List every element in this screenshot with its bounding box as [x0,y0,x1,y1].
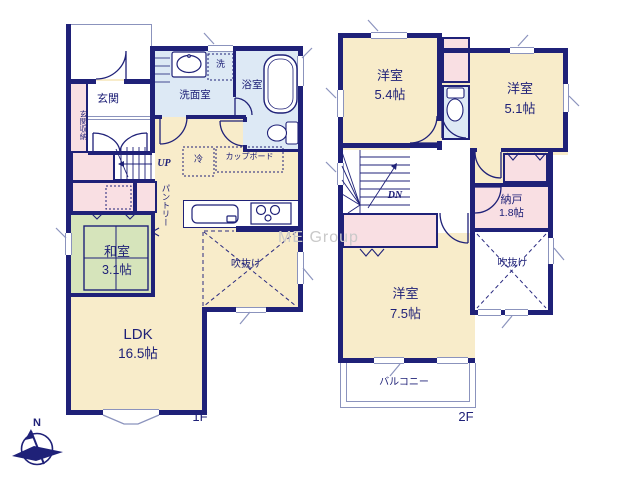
f1-bay-window-band [103,409,159,416]
f1-senmen-label: 洗面室 [160,90,230,102]
f1-senmen-room [152,46,235,117]
floorplan-canvas: 玄関 玄関収納 洗面室 洗 浴室 冷 カップボード UP パントリー 和室 3.… [0,0,640,480]
f1-window-bath [297,56,304,86]
f1-pantry-label: パントリー [158,176,170,234]
f2-wall-mid [437,33,442,121]
f1-closet-2 [71,181,135,213]
f2-window-stairs-left [337,163,344,185]
f2-window-bed3-a [374,357,404,364]
f2-bed1-size: 5.4帖 [355,88,425,102]
f2-balcony-label: バルコニー [368,377,440,388]
f1-cupboard-label: カップボード [216,153,283,162]
f1-window-void-right [297,252,304,284]
f2-void-label: 吹抜け [485,258,540,269]
f1-wall-wet-bottom-a [152,115,162,119]
f1-up-label: UP [152,158,176,169]
f1-void-label: 吹抜け [218,259,274,270]
f1-fridge-label: 冷 [183,155,214,165]
f2-wall-bed1-bottom [338,143,442,148]
f1-wall-porch-a [66,79,96,84]
f1-window-void-bottom [236,307,266,313]
f2-wall-left [338,33,343,363]
f2-wall-nando-top [475,183,553,187]
f2-window-bed2-right [563,84,569,112]
f1-ldk-label: LDK [98,327,178,344]
f1-bath-label: 浴室 [234,80,270,92]
f2-nando-size: 1.8帖 [478,208,545,220]
watermark: ME Group [278,229,388,247]
f1-genkan-storage-label: 玄関収納 [72,96,87,154]
f2-bed2-label: 洋室 [485,82,555,96]
f1-bay-window [103,415,159,424]
f2-closet-bed2 [503,153,548,183]
f2-closet-bed1 [442,37,470,83]
f2-floor-label: 2F [450,410,482,424]
f2-wall-top2 [442,48,568,53]
f2-stairs [342,150,410,213]
f1-window-washitsu [65,233,72,255]
f2-window-void-right [548,238,554,264]
f1-wall-hall-closet [88,151,152,155]
f2-window-void-bottom-a [478,309,501,316]
compass-icon [12,429,63,465]
f2-bed2-size: 5.1帖 [485,102,555,116]
compass-north-label: N [29,417,45,429]
f2-bed3-label: 洋室 [368,287,443,301]
f1-window-top [208,45,233,52]
f1-porch [66,24,152,79]
f1-toilet-room [243,117,303,151]
f1-wall-toilet-stub1 [243,117,247,122]
f1-washer-label: 洗 [210,60,231,70]
f2-window-bed1-top [371,32,407,39]
f1-genkan-label: 玄関 [80,93,136,105]
f2-bed1-label: 洋室 [355,69,425,83]
f1-pantry-room [135,181,157,213]
f2-nando-label: 納戸 [478,194,545,206]
f1-closet-1 [71,151,115,182]
f1-wall-stairs-bottom [115,179,155,183]
f1-ldk-size: 16.5帖 [94,347,182,362]
f2-void-room [475,232,548,310]
f2-window-bed2-top [510,47,534,54]
f1-floor-label: 1F [184,410,216,424]
f2-window-void-bottom-b [505,309,528,316]
f1-wall-wet-bottom-b [186,115,246,119]
f2-dn-label: DN [382,190,408,201]
f2-wall-nando-bottom [475,228,553,232]
f2-bed3-size: 7.5帖 [368,307,443,321]
f1-washitsu-label: 和室 [84,245,150,259]
f2-wall-right2 [548,152,553,315]
f1-kitchen-counter [183,200,299,228]
f2-window-bed3-b [437,357,468,364]
f2-wall-bed2-bottom-b [501,148,568,152]
f1-wall-right-lower [202,307,207,415]
f2-toilet-room [442,85,470,140]
f1-genkan-step [88,116,150,120]
f1-wall-genkan-right [150,46,155,153]
f2-window-bed1-left [337,90,344,117]
f1-washitsu-size: 3.1帖 [84,264,150,278]
f2-hall-small [442,140,470,150]
